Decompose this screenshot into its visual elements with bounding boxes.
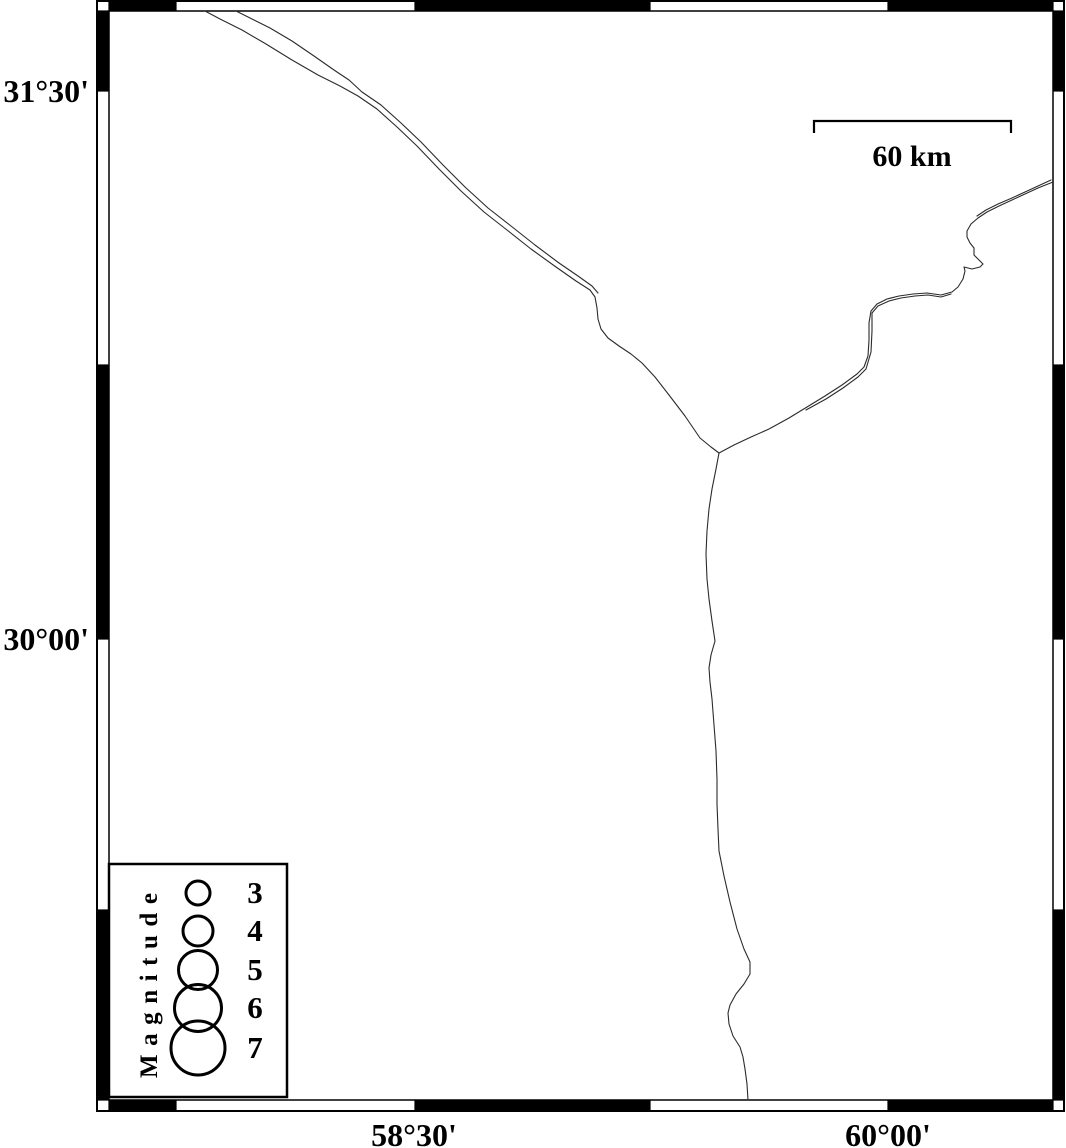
lat-label-31-30: 31°30': [3, 73, 89, 109]
frame-segment-top: [415, 1, 650, 11]
frame-segment-left: [97, 11, 109, 91]
magnitude-label-6: 6: [247, 990, 263, 1025]
boundary-nw-second: [236, 11, 598, 293]
frame-segment-bottom: [888, 1100, 1053, 1111]
magnitude-label-3: 3: [247, 875, 263, 910]
boundary-nw-main: [205, 11, 719, 453]
frame-segment-left: [97, 910, 109, 1100]
lon-label-60-00: 60°00': [845, 1117, 931, 1148]
lat-label-30-00: 30°00': [3, 621, 89, 657]
frame-segment-right: [1053, 11, 1064, 91]
scale-bar-label: 60 km: [872, 140, 951, 173]
map-canvas: 31°30' 30°00' 58°30' 60°00' 60 km Magnit…: [0, 0, 1066, 1148]
frame-segment-top: [888, 1, 1053, 11]
frame-segment-right: [1053, 365, 1064, 639]
scale-bar: 60 km: [814, 121, 1011, 173]
frame-segment-top: [109, 1, 176, 11]
boundary-ne-second-upper: [977, 180, 1051, 216]
frame-segment-bottom: [415, 1100, 650, 1111]
magnitude-label-5: 5: [247, 952, 263, 987]
magnitude-legend: Magnitude 34567: [109, 864, 287, 1097]
frame-segment-left: [97, 365, 109, 639]
frame-segment-bottom: [109, 1100, 176, 1111]
map-lines: [205, 11, 1053, 1100]
map-figure: 31°30' 30°00' 58°30' 60°00' 60 km Magnit…: [0, 0, 1066, 1148]
boundary-south: [706, 453, 750, 1100]
lon-label-58-30: 58°30': [371, 1117, 457, 1148]
scale-bar-bracket: [814, 121, 1011, 133]
boundary-ne-second-lower: [806, 294, 951, 410]
magnitude-label-7: 7: [247, 1030, 263, 1065]
boundary-ne-main: [719, 182, 1053, 453]
magnitude-label-4: 4: [247, 913, 263, 948]
frame-segment-right: [1053, 910, 1064, 1100]
